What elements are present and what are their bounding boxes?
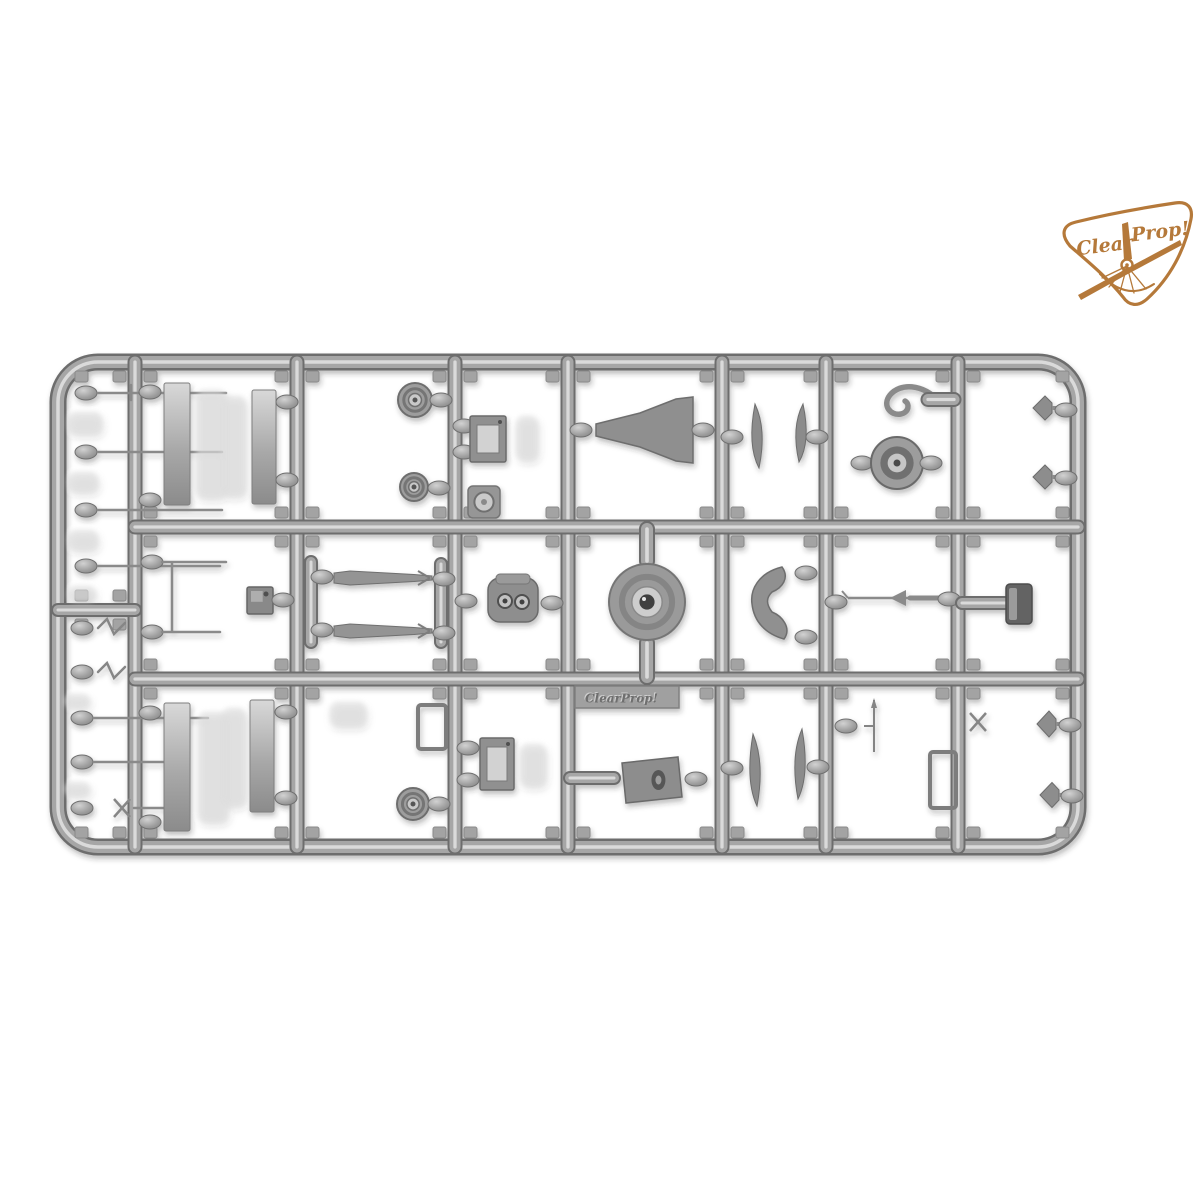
logo-text-prop: Prop! (1129, 217, 1191, 246)
photo-stage: ClearProp!ClearProp! Clear Prop! (0, 0, 1200, 1200)
clearprop-logo: Clear Prop! (0, 0, 1200, 1200)
